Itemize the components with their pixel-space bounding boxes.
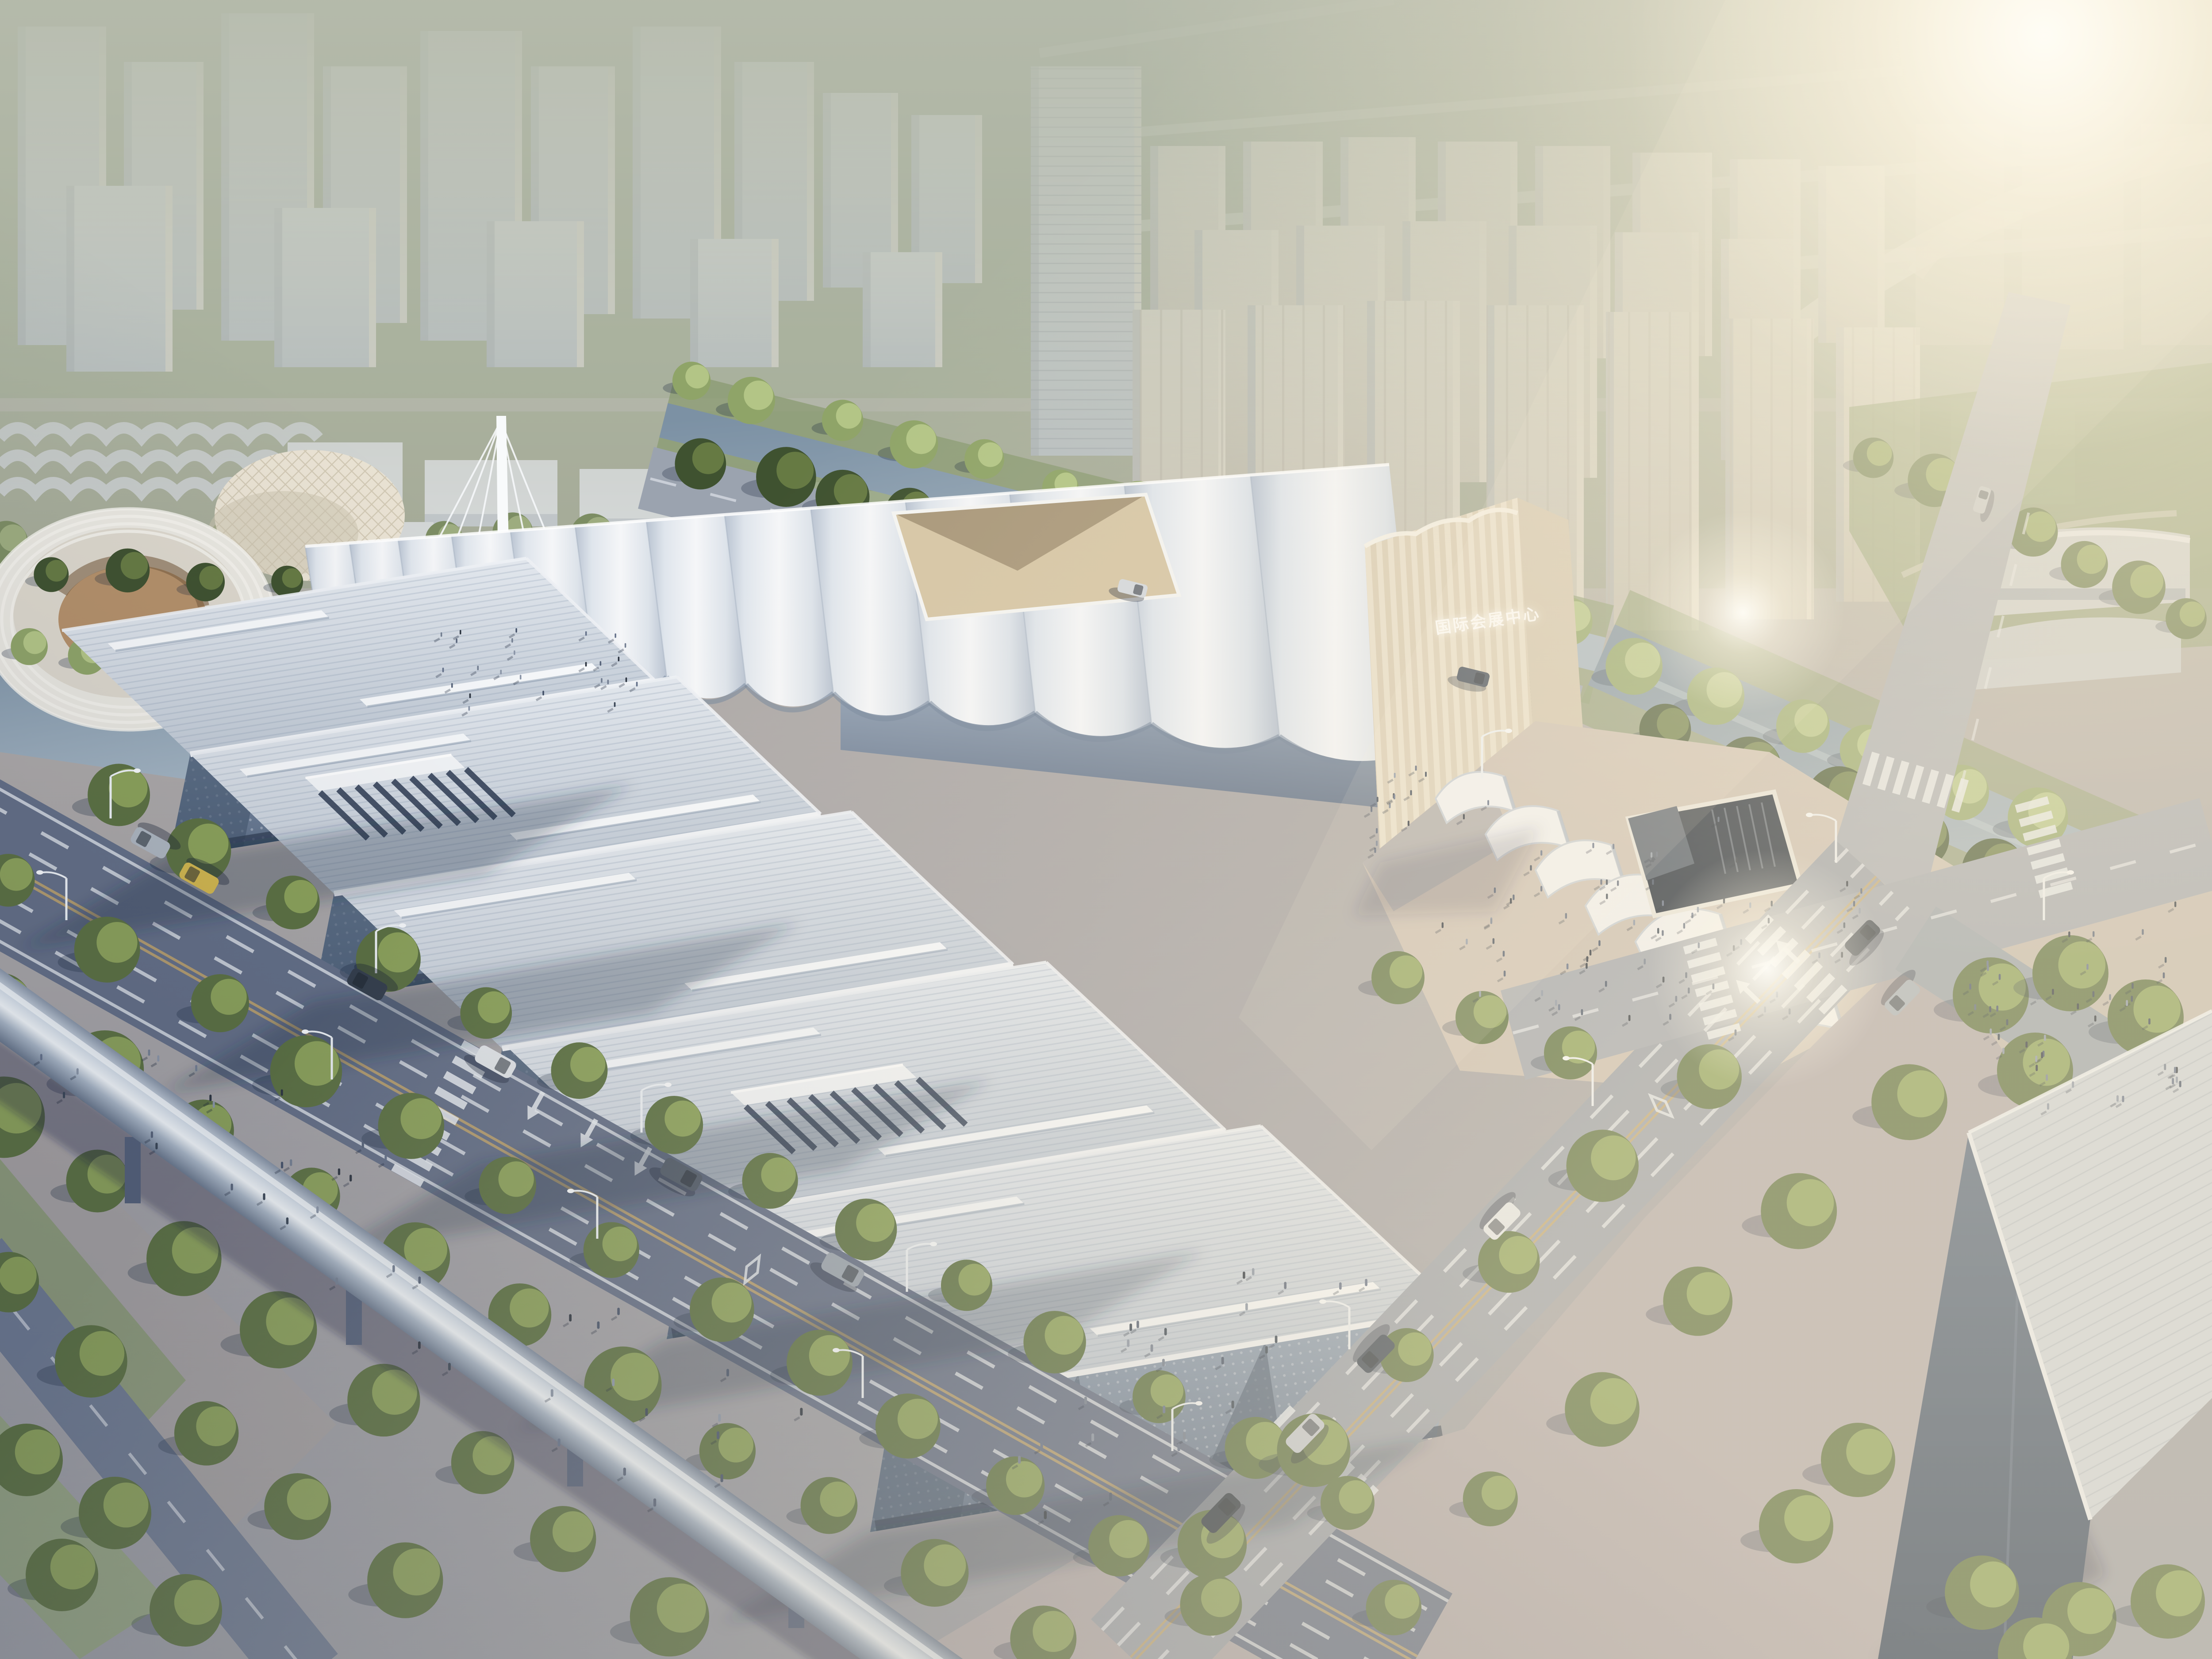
scene-svg: 国际会展中心 xyxy=(0,0,2212,1659)
aerial-render: 国际会展中心 xyxy=(0,0,2212,1659)
sun-glare xyxy=(0,0,2212,1659)
